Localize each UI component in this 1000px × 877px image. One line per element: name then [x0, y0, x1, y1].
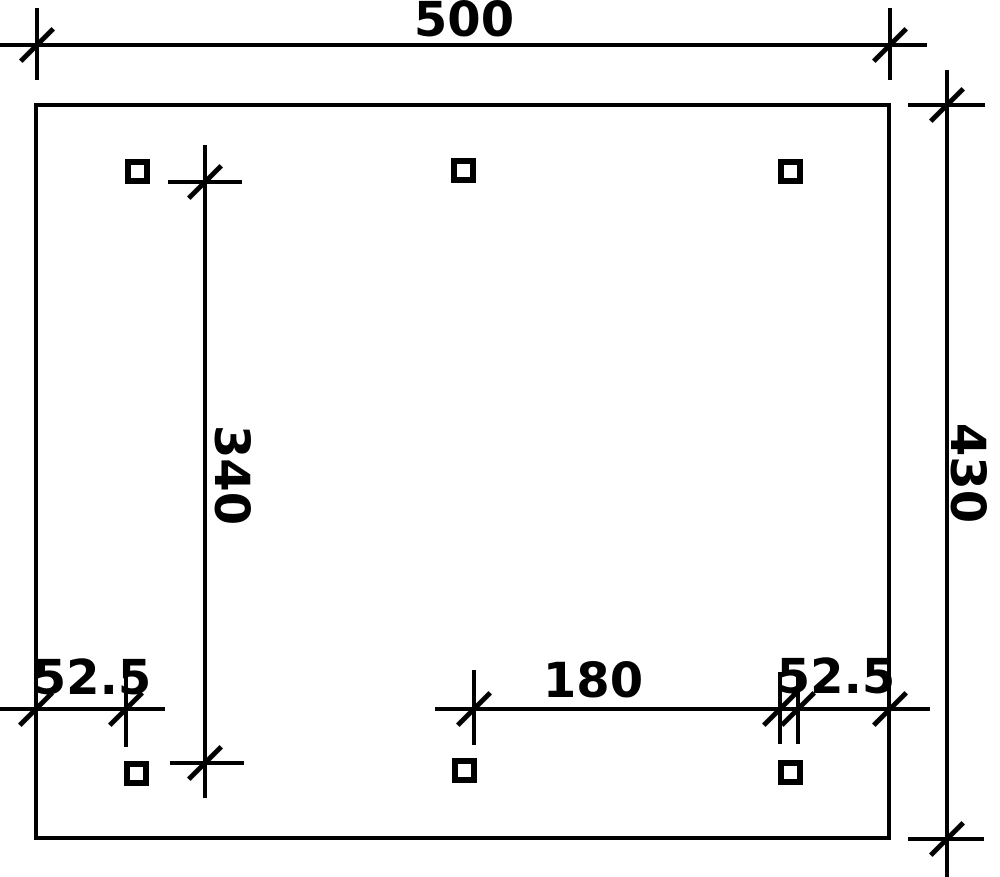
- post-top-middle: [451, 158, 476, 183]
- post-top-left: [125, 159, 150, 184]
- wall-outline-rect: [34, 103, 891, 840]
- post-bottom-middle: [452, 758, 477, 783]
- post-bottom-right: [778, 760, 803, 785]
- dim-line-bottom-left-offset: [0, 707, 165, 711]
- technical-drawing-canvas: 500 430 340 52.5 180 52.5: [0, 0, 1000, 877]
- dim-label-bottom-span: 180: [543, 657, 643, 705]
- dim-label-top-width: 500: [414, 0, 514, 44]
- post-top-right: [778, 159, 803, 184]
- dim-label-inner-height: 340: [207, 425, 255, 525]
- dim-label-right-height: 430: [943, 423, 991, 523]
- dim-line-bottom-span: [435, 707, 930, 711]
- dim-label-bottom-left-offset: 52.5: [33, 654, 151, 702]
- post-bottom-left: [124, 761, 149, 786]
- dim-label-bottom-right-offset: 52.5: [777, 653, 895, 701]
